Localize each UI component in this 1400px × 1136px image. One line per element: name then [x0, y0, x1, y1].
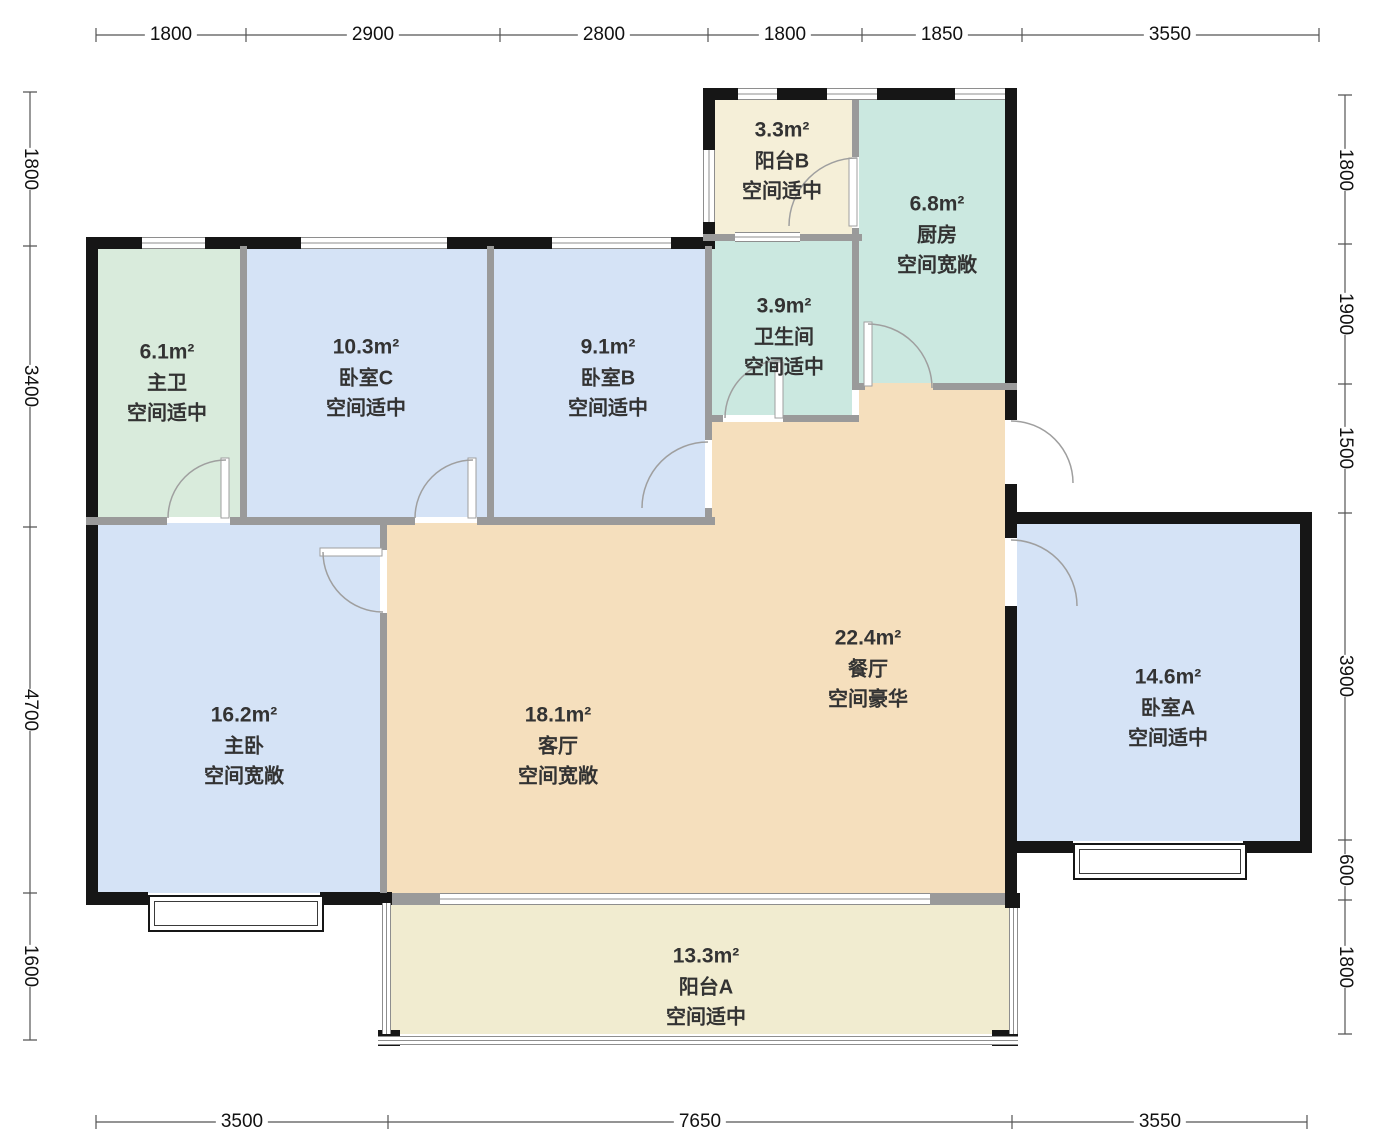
- door-arc-kitchen: [868, 324, 932, 388]
- door-slab-bedroom-c: [468, 458, 476, 518]
- room-label-kitchen: 6.8m² 厨房 空间宽敞: [897, 188, 977, 280]
- dim-top-4: 1800: [759, 24, 811, 46]
- door-arc-master-bedroom: [323, 552, 383, 612]
- room-name: 主卧: [204, 731, 284, 761]
- room-label-dining: 22.4m² 餐厅 空间豪华: [828, 622, 908, 714]
- room-name: 厨房: [897, 220, 977, 250]
- room-descriptor: 空间豪华: [828, 684, 908, 714]
- room-label-balcony-b: 3.3m² 阳台B 空间适中: [742, 114, 822, 206]
- dim-top-6: 3550: [1144, 24, 1196, 46]
- dim-top-5: 1850: [916, 24, 968, 46]
- door-slab-master-bedroom: [320, 548, 382, 556]
- room-descriptor: 空间宽敞: [897, 250, 977, 280]
- room-area: 10.3m²: [326, 331, 406, 363]
- door-arc-bedroom-c: [415, 460, 473, 518]
- room-area: 6.8m²: [897, 188, 977, 220]
- dim-right-1: 1800: [1329, 149, 1361, 191]
- dim-top-2: 2900: [347, 24, 399, 46]
- room-label-master-bedroom: 16.2m² 主卧 空间宽敞: [204, 699, 284, 791]
- room-label-balcony-a: 13.3m² 阳台A 空间适中: [666, 940, 746, 1032]
- dim-left-2: 3400: [14, 365, 46, 407]
- room-label-bedroom-c: 10.3m² 卧室C 空间适中: [326, 331, 406, 423]
- floor-plan-canvas: 6.1m² 主卫 空间适中 10.3m² 卧室C 空间适中 9.1m² 卧室B …: [0, 0, 1400, 1136]
- room-area: 13.3m²: [666, 940, 746, 972]
- room-area: 3.9m²: [744, 290, 824, 322]
- room-name: 主卫: [127, 368, 207, 398]
- dim-right-4: 3900: [1329, 655, 1361, 697]
- room-descriptor: 空间适中: [568, 393, 648, 423]
- room-area: 18.1m²: [518, 699, 598, 731]
- room-area: 14.6m²: [1128, 661, 1208, 693]
- dim-top-1: 1800: [145, 24, 197, 46]
- door-slab-balcony-b: [849, 158, 857, 226]
- room-label-living: 18.1m² 客厅 空间宽敞: [518, 699, 598, 791]
- room-label-bedroom-a: 14.6m² 卧室A 空间适中: [1128, 661, 1208, 753]
- room-descriptor: 空间宽敞: [518, 761, 598, 791]
- dim-right-5: 600: [1329, 854, 1361, 886]
- dim-bottom-1: 3500: [216, 1111, 268, 1133]
- room-descriptor: 空间适中: [666, 1002, 746, 1032]
- room-name: 卧室C: [326, 363, 406, 393]
- dim-right-2: 1900: [1329, 293, 1361, 335]
- room-area: 6.1m²: [127, 336, 207, 368]
- room-descriptor: 空间适中: [326, 393, 406, 423]
- dim-left-1: 1800: [14, 148, 46, 190]
- room-area: 9.1m²: [568, 331, 648, 363]
- door-arc-master-bath: [168, 460, 226, 518]
- room-name: 餐厅: [828, 654, 908, 684]
- room-area: 3.3m²: [742, 114, 822, 146]
- room-name: 卧室A: [1128, 693, 1208, 723]
- room-descriptor: 空间适中: [742, 176, 822, 206]
- room-label-bedroom-b: 9.1m² 卧室B 空间适中: [568, 331, 648, 423]
- room-area: 16.2m²: [204, 699, 284, 731]
- dim-left-4: 1600: [14, 945, 46, 987]
- dim-right-3: 1500: [1329, 427, 1361, 469]
- room-label-master-bath: 6.1m² 主卫 空间适中: [127, 336, 207, 428]
- room-descriptor: 空间适中: [1128, 723, 1208, 753]
- dim-right-6: 1800: [1329, 946, 1361, 988]
- room-name: 卫生间: [744, 322, 824, 352]
- room-label-bathroom: 3.9m² 卫生间 空间适中: [744, 290, 824, 382]
- dim-bottom-3: 3550: [1134, 1111, 1186, 1133]
- dim-left-3: 4700: [14, 689, 46, 731]
- dim-top-3: 2800: [578, 24, 630, 46]
- door-arc-bedroom-b: [642, 442, 708, 508]
- room-name: 阳台A: [666, 972, 746, 1002]
- door-arc-bedroom-a: [1011, 540, 1077, 606]
- room-descriptor: 空间适中: [744, 352, 824, 382]
- door-slab-master-bath: [221, 458, 229, 518]
- dim-bottom-2: 7650: [674, 1111, 726, 1133]
- room-area: 22.4m²: [828, 622, 908, 654]
- room-name: 卧室B: [568, 363, 648, 393]
- room-descriptor: 空间适中: [127, 398, 207, 428]
- room-descriptor: 空间宽敞: [204, 761, 284, 791]
- door-slab-kitchen: [864, 322, 872, 386]
- room-name: 阳台B: [742, 146, 822, 176]
- door-arc-entry: [1011, 421, 1073, 483]
- room-name: 客厅: [518, 731, 598, 761]
